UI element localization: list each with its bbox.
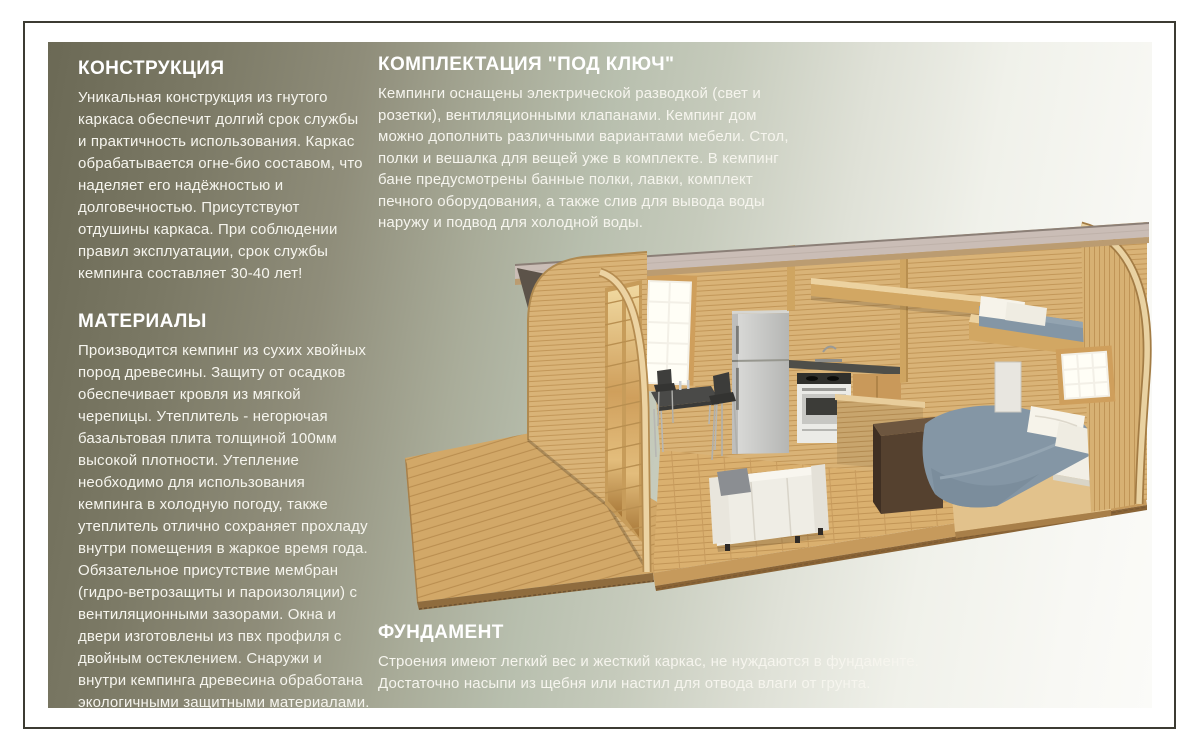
camping-house-illustration xyxy=(395,210,1152,620)
sofa xyxy=(709,464,829,552)
construction-body: Уникальная конструкция из гнутого каркас… xyxy=(78,87,370,285)
content-area: КОНСТРУКЦИЯ Уникальная конструкция из гн… xyxy=(48,42,1152,708)
brochure-page: КОНСТРУКЦИЯ Уникальная конструкция из гн… xyxy=(0,0,1200,750)
materials-title: МАТЕРИАЛЫ xyxy=(78,311,370,333)
equipment-title: КОМПЛЕКТАЦИЯ "ПОД КЛЮЧ" xyxy=(378,54,796,76)
left-column: КОНСТРУКЦИЯ Уникальная конструкция из гн… xyxy=(78,58,370,708)
fridge xyxy=(732,310,789,454)
bedroom-window xyxy=(1056,345,1116,405)
foundation-body: Строения имеют легкий вес и жесткий карк… xyxy=(378,651,926,694)
foundation-section: ФУНДАМЕНТ Строения имеют легкий вес и же… xyxy=(378,622,926,694)
construction-title: КОНСТРУКЦИЯ xyxy=(78,58,370,80)
foundation-title: ФУНДАМЕНТ xyxy=(378,622,926,644)
materials-body: Производится кемпинг из сухих хвойных по… xyxy=(78,340,370,708)
equipment-section: КОМПЛЕКТАЦИЯ "ПОД КЛЮЧ" Кемпинги оснащен… xyxy=(378,54,796,234)
